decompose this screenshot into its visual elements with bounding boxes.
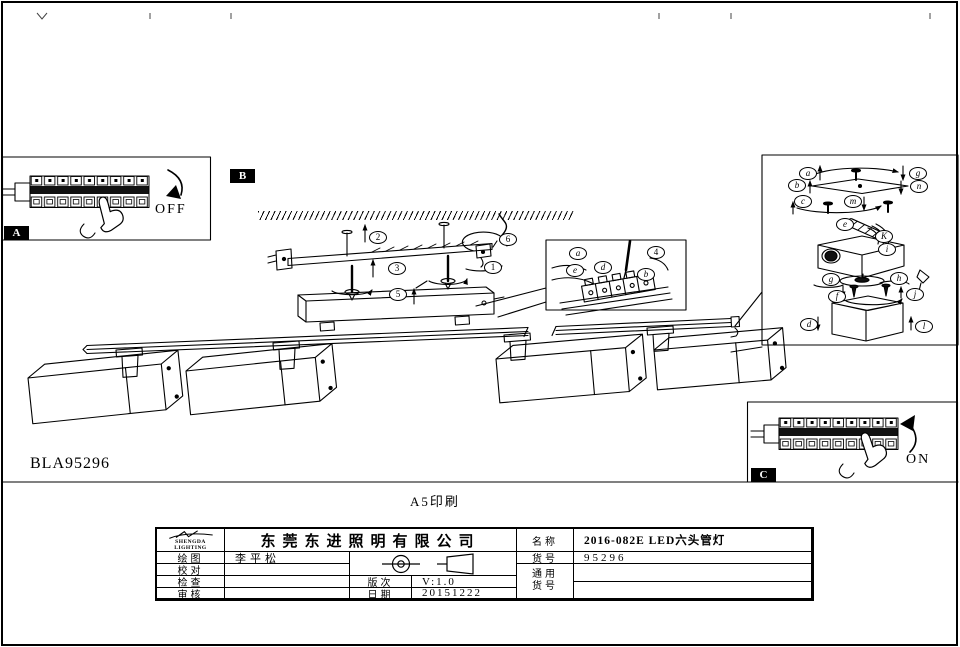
top-marks <box>37 13 930 19</box>
title-block: SHENGDA LIGHTING 东莞东进照明有限公司 绘图 校对 检查 审核 … <box>155 527 814 601</box>
common-item-value-1 <box>574 564 812 582</box>
version-label: 版次 <box>350 576 412 588</box>
exploded-h: h <box>890 272 908 285</box>
exploded-e: e <box>836 218 854 231</box>
proof-value <box>225 564 350 576</box>
step-2-callout: 2 <box>369 231 387 244</box>
print-note: A5印刷 <box>0 491 870 510</box>
panel-a-badge: A <box>4 226 29 240</box>
panel-b-badge: B <box>230 169 255 183</box>
light-fixture-2 <box>185 344 338 415</box>
projection-symbol <box>350 552 517 576</box>
date-label: 日期 <box>350 588 412 599</box>
review-value <box>225 588 350 599</box>
light-fixture-1 <box>27 350 184 424</box>
common-item-label: 通用 货号 <box>517 564 574 599</box>
exploded-l: l <box>915 320 933 333</box>
step-6-callout: 6 <box>499 233 517 246</box>
light-fixture-3 <box>495 334 647 403</box>
inspect-label: 检查 <box>157 576 225 588</box>
first-angle-projection-icon <box>373 553 493 575</box>
step-4-callout: 4 <box>647 246 665 259</box>
step-5-callout: 5 <box>389 288 407 301</box>
step-3-callout: 3 <box>388 262 406 275</box>
exploded-k: K <box>875 230 893 243</box>
logo-text-2: LIGHTING <box>174 546 206 552</box>
company-logo: SHENGDA LIGHTING <box>157 529 225 552</box>
exploded-j: j <box>906 288 924 301</box>
exploded-view <box>793 166 929 341</box>
detail-part-e: e <box>566 264 584 277</box>
drawing-code: BLA95296 <box>30 455 110 473</box>
inspect-value <box>225 576 350 588</box>
exploded-d: d <box>800 318 818 331</box>
item-value: 95296 <box>574 552 812 564</box>
review-label: 审核 <box>157 588 225 599</box>
name-label: 名称 <box>517 529 574 552</box>
detail-part-d: d <box>594 261 612 274</box>
name-value: 2016-082E LED六头管灯 <box>574 529 812 552</box>
proof-label: 校对 <box>157 564 225 576</box>
mounting-bar-drawing <box>268 214 507 304</box>
draw-label: 绘图 <box>157 552 225 564</box>
date-value: 20151222 <box>412 588 517 599</box>
common-item-label-line2: 货号 <box>532 581 558 593</box>
off-label: OFF <box>155 202 187 218</box>
exploded-n: n <box>910 180 928 193</box>
exploded-a: a <box>799 167 817 180</box>
detail-part-a: a <box>569 247 587 260</box>
panel-c-badge: C <box>751 468 776 482</box>
common-item-value-2 <box>574 582 812 599</box>
drawing-sheet: A B C OFF ON 1 2 3 4 5 6 a e d b a g b n… <box>0 0 960 647</box>
exploded-c: c <box>794 195 812 208</box>
step-1-callout: 1 <box>484 261 502 274</box>
common-item-label-line1: 通用 <box>532 569 558 581</box>
draw-value: 李平松 <box>225 552 350 564</box>
company-name: 东莞东进照明有限公司 <box>225 529 517 552</box>
exploded-m: m <box>844 195 862 208</box>
item-label: 货号 <box>517 552 574 564</box>
exploded-g2: g <box>822 273 840 286</box>
exploded-i: i <box>878 243 896 256</box>
exploded-f: f <box>828 290 846 303</box>
detail-part-b: b <box>637 268 655 281</box>
exploded-g: g <box>909 167 927 180</box>
detail-callout-frame <box>546 240 686 310</box>
light-fixture-4 <box>653 328 787 390</box>
version-value: V:1.0 <box>412 576 517 588</box>
on-label: ON <box>906 452 930 468</box>
exploded-b: b <box>788 179 806 192</box>
